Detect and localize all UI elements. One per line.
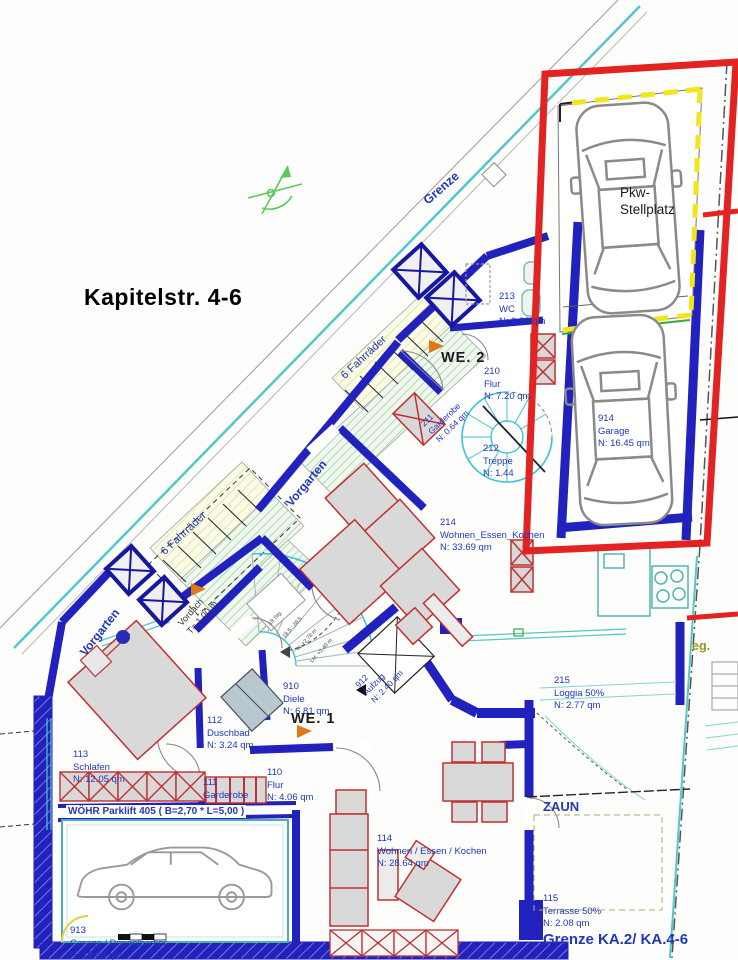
weg-label: eg. xyxy=(692,638,710,655)
page-title: Kapitelstr. 4-6 xyxy=(84,282,242,312)
room-label-112: 112DuschbadN: 3.24 qm xyxy=(207,690,253,765)
room-label-113: 113SchlafenN: 12.05 qm xyxy=(73,724,125,799)
room-label-213: 213WCN: 2.88 qm xyxy=(499,266,545,341)
neighbor-left xyxy=(0,731,34,827)
grenze-ka-label: Grenze KA.2/ KA.4-6 xyxy=(543,930,688,950)
unit-label-we2: WE. 2 xyxy=(441,349,485,368)
room-label-914: 914GarageN: 16.45 qm xyxy=(598,388,650,463)
room-label-210: 210FlurN: 7.20 qm xyxy=(484,341,530,416)
room-label-212: 212TreppeN: 1.44 xyxy=(483,418,514,493)
closet-strip-114 xyxy=(330,930,458,956)
north-arrow-icon xyxy=(248,166,302,214)
room-label-110: 110FlurN: 4.06 qm xyxy=(267,742,313,817)
kitchen-block xyxy=(598,548,688,616)
zaun-label: ZAUN xyxy=(543,798,579,815)
room-label-215: 215Loggia 50%N: 2.77 qm xyxy=(554,650,604,725)
room-label-214: 214Wohnen_Essen_KochenN: 33.69 qm xyxy=(440,492,544,567)
unit-label-we1: WE. 1 xyxy=(291,710,335,729)
pkw-stellplatz-label: Pkw-Stellplatz xyxy=(620,148,675,237)
floorplan-page: Kapitelstr. 4-6 Grenze Pkw-Stellplatz 21… xyxy=(0,0,738,960)
room-label-913: 913Garage / DoppelparkerN: 18.69 qm xyxy=(70,900,167,960)
parklift-label: WÖHR Parklift 405 ( B=2,70 * L=5,00 ) xyxy=(66,805,246,818)
west-wall xyxy=(34,696,52,948)
zaun-fence-line xyxy=(527,789,690,797)
room-label-114: 114Wohnen / Essen / KochenN: 28.64 qm xyxy=(377,808,487,883)
